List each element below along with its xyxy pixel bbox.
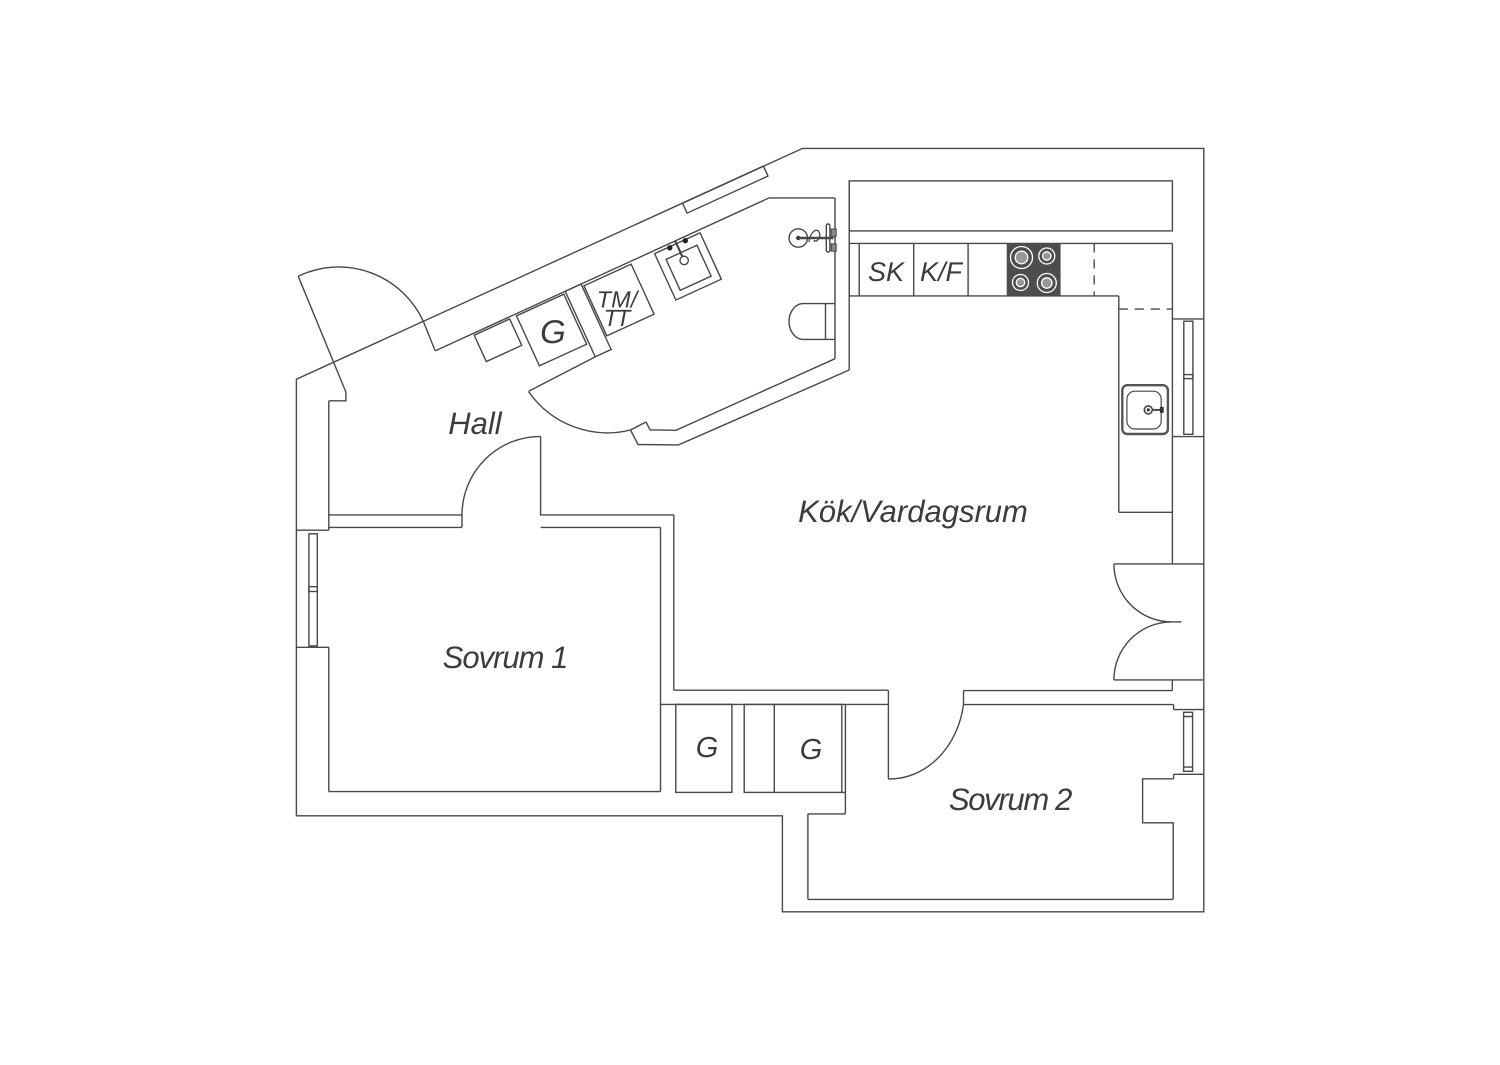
svg-text:Sovrum 1: Sovrum 1 xyxy=(443,640,568,675)
svg-text:SK: SK xyxy=(868,257,905,287)
svg-text:TT: TT xyxy=(604,305,632,331)
svg-text:G: G xyxy=(540,313,566,350)
svg-text:Hall: Hall xyxy=(448,406,503,441)
svg-text:Sovrum 2: Sovrum 2 xyxy=(949,782,1072,817)
svg-text:Kök/Vardagsrum: Kök/Vardagsrum xyxy=(798,494,1028,529)
svg-text:K/F: K/F xyxy=(920,257,964,287)
svg-text:G: G xyxy=(800,734,823,766)
svg-text:G: G xyxy=(696,732,719,764)
